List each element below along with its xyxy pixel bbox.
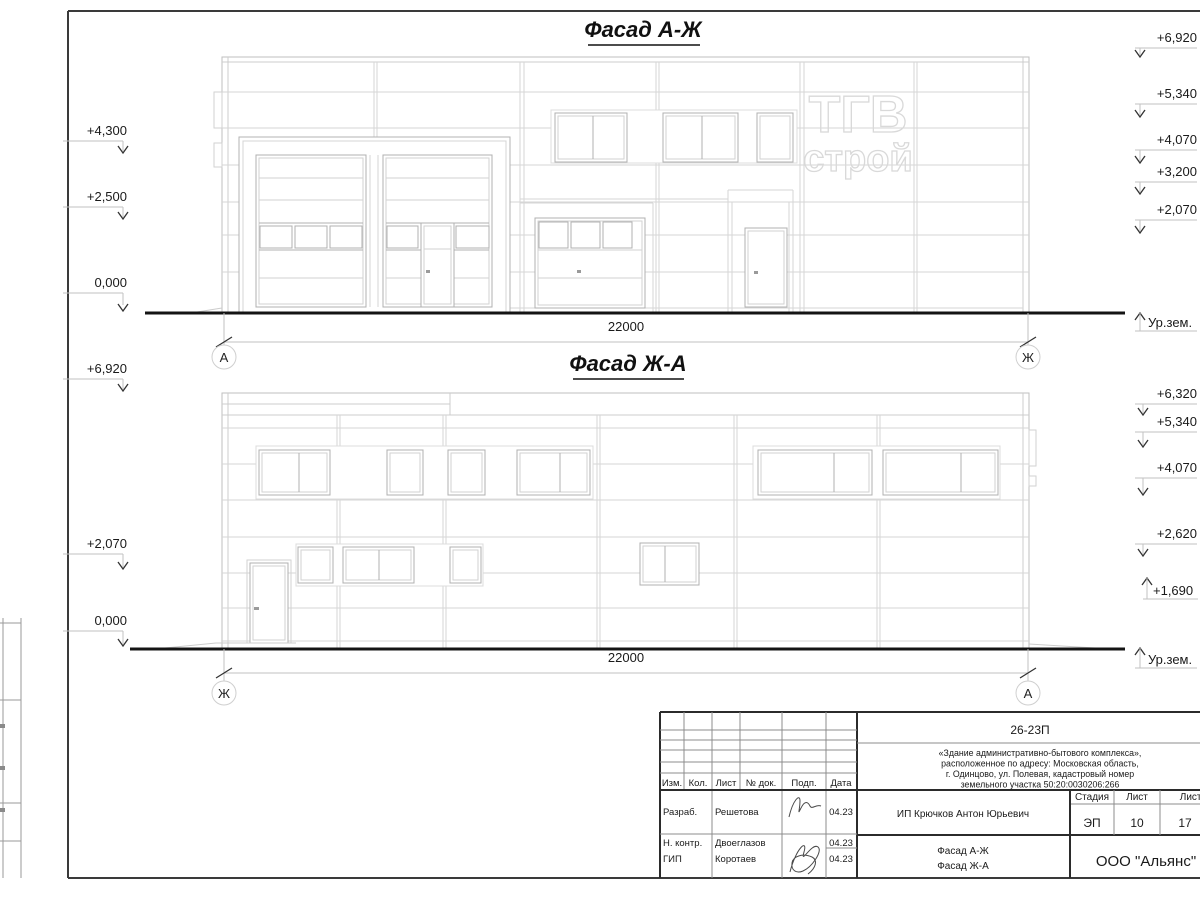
upper-window-band <box>551 110 797 163</box>
svg-text:Решетова: Решетова <box>715 807 759 818</box>
elevation-marks-top-right: +6,920 +5,340 +4,070 +3,200 +2,070 Ур.зе… <box>1135 30 1197 331</box>
sectional-door-right <box>383 155 492 307</box>
title-block: Изм. Кол. Лист № док. Подп. Дата Разраб.… <box>660 712 1200 878</box>
sectional-door-left <box>256 155 366 307</box>
svg-text:Лист: Лист <box>1126 792 1148 803</box>
organization-name: ООО "Альянс" <box>1096 853 1196 870</box>
svg-text:Двоеглазов: Двоеглазов <box>715 838 766 849</box>
drawing-sheet: Фасад А-Ж <box>0 0 1200 900</box>
dimension-bottom: 22000 Ж А <box>212 649 1040 705</box>
elevation-marks-bottom-right: +6,320 +5,340 +4,070 +2,620 +1,690 <box>1135 386 1198 668</box>
svg-text:+5,340: +5,340 <box>1157 414 1197 429</box>
project-description: «Здание административно-бытового комплек… <box>939 748 1142 790</box>
watermark-line1: ТГВ <box>809 86 908 144</box>
svg-text:+6,320: +6,320 <box>1157 386 1197 401</box>
dimension-value: 22000 <box>608 319 644 334</box>
upper-window-band-left <box>256 446 593 499</box>
elevation-mark-up: +1,690 <box>1142 578 1198 599</box>
upper-window-band-right <box>753 446 1000 499</box>
facade-bottom-title: Фасад Ж-А <box>569 351 686 376</box>
svg-text:Разраб.: Разраб. <box>663 807 697 818</box>
facade-bottom-drawing: Фасад Ж-А <box>63 351 1198 705</box>
svg-text:ГИП: ГИП <box>663 854 682 865</box>
stage-sheet-cells: Стадия Лист Листов ЭП 10 17 <box>1075 792 1200 830</box>
svg-text:+4,070: +4,070 <box>1157 132 1197 147</box>
client-name: ИП Крючков Антон Юрьевич <box>897 809 1029 820</box>
svg-text:земельного участка 50:20:00302: земельного участка 50:20:0030206:266 <box>961 780 1120 790</box>
svg-text:Фасад А-Ж: Фасад А-Ж <box>937 846 989 857</box>
adjacent-sheet-edge <box>0 618 21 878</box>
svg-text:Ур.зем.: Ур.зем. <box>1148 652 1192 667</box>
ground-level-mark: Ур.зем. <box>1135 313 1197 331</box>
garage-opening <box>239 137 510 313</box>
svg-text:Коротаев: Коротаев <box>715 854 756 865</box>
dimension-value: 22000 <box>608 650 644 665</box>
svg-text:Лист: Лист <box>716 778 737 789</box>
axis-label-left: Ж <box>218 686 230 701</box>
svg-text:04.23: 04.23 <box>829 854 853 865</box>
title-block-header: Изм. Кол. Лист № док. Подп. Дата <box>662 778 852 789</box>
svg-text:+1,690: +1,690 <box>1153 583 1193 598</box>
sheet-title: Фасад А-Ж Фасад Ж-А <box>937 846 989 872</box>
svg-text:Ур.зем.: Ур.зем. <box>1148 315 1192 330</box>
facade-top-drawing: Фасад А-Ж <box>63 17 1197 369</box>
ground-level-mark: Ур.зем. <box>1135 648 1197 668</box>
svg-text:«Здание административно-бытово: «Здание административно-бытового комплек… <box>939 748 1142 758</box>
svg-text:Кол.: Кол. <box>689 778 708 789</box>
axis-label-right: Ж <box>1022 350 1034 365</box>
svg-text:Фасад Ж-А: Фасад Ж-А <box>937 861 989 872</box>
svg-text:0,000: 0,000 <box>94 275 127 290</box>
svg-text:Подп.: Подп. <box>791 778 816 789</box>
svg-text:+5,340: +5,340 <box>1157 86 1197 101</box>
signature-1 <box>789 798 821 817</box>
svg-text:04.23: 04.23 <box>829 807 853 818</box>
svg-text:+2,070: +2,070 <box>1157 202 1197 217</box>
svg-text:Стадия: Стадия <box>1075 792 1109 803</box>
svg-text:0,000: 0,000 <box>94 613 127 628</box>
elevation-marks-top-left: +4,300 +2,500 0,000 <box>63 123 128 311</box>
wicket-door <box>421 223 454 307</box>
watermark-line2: строй <box>803 138 913 180</box>
doc-number: 26-23П <box>1010 723 1049 737</box>
svg-text:+2,500: +2,500 <box>87 189 127 204</box>
svg-text:04.23: 04.23 <box>829 838 853 849</box>
svg-text:+4,070: +4,070 <box>1157 460 1197 475</box>
svg-text:+2,620: +2,620 <box>1157 526 1197 541</box>
svg-text:+2,070: +2,070 <box>87 536 127 551</box>
svg-text:г. Одинцово, ул. Полевая, када: г. Одинцово, ул. Полевая, кадастровый но… <box>946 769 1134 779</box>
svg-text:расположенное по адресу: Моско: расположенное по адресу: Московская обла… <box>941 759 1139 769</box>
title-block-rows: Разраб. Решетова 04.23 Н. контр. Двоегла… <box>663 798 853 874</box>
elevation-marks-bottom-left: +6,920 +2,070 0,000 <box>63 361 128 646</box>
stage-value: ЭП <box>1083 816 1100 830</box>
svg-text:Дата: Дата <box>830 778 852 789</box>
svg-text:Изм.: Изм. <box>662 778 682 789</box>
svg-text:+3,200: +3,200 <box>1157 164 1197 179</box>
signature-2 <box>790 846 819 874</box>
axis-label-right: А <box>1024 686 1033 701</box>
watermark: ТГВ строй <box>803 86 913 180</box>
svg-text:+4,300: +4,300 <box>87 123 127 138</box>
svg-text:Н. контр.: Н. контр. <box>663 838 702 849</box>
svg-text:Листов: Листов <box>1180 792 1200 803</box>
svg-text:№ док.: № док. <box>746 778 776 789</box>
facade-top-title: Фасад А-Ж <box>584 17 703 42</box>
axis-label-left: А <box>220 350 229 365</box>
svg-text:+6,920: +6,920 <box>1157 30 1197 45</box>
entrance-door-bottom <box>247 560 291 643</box>
sheet-number: 10 <box>1130 816 1144 830</box>
sheets-total: 17 <box>1178 816 1192 830</box>
svg-text:+6,920: +6,920 <box>87 361 127 376</box>
